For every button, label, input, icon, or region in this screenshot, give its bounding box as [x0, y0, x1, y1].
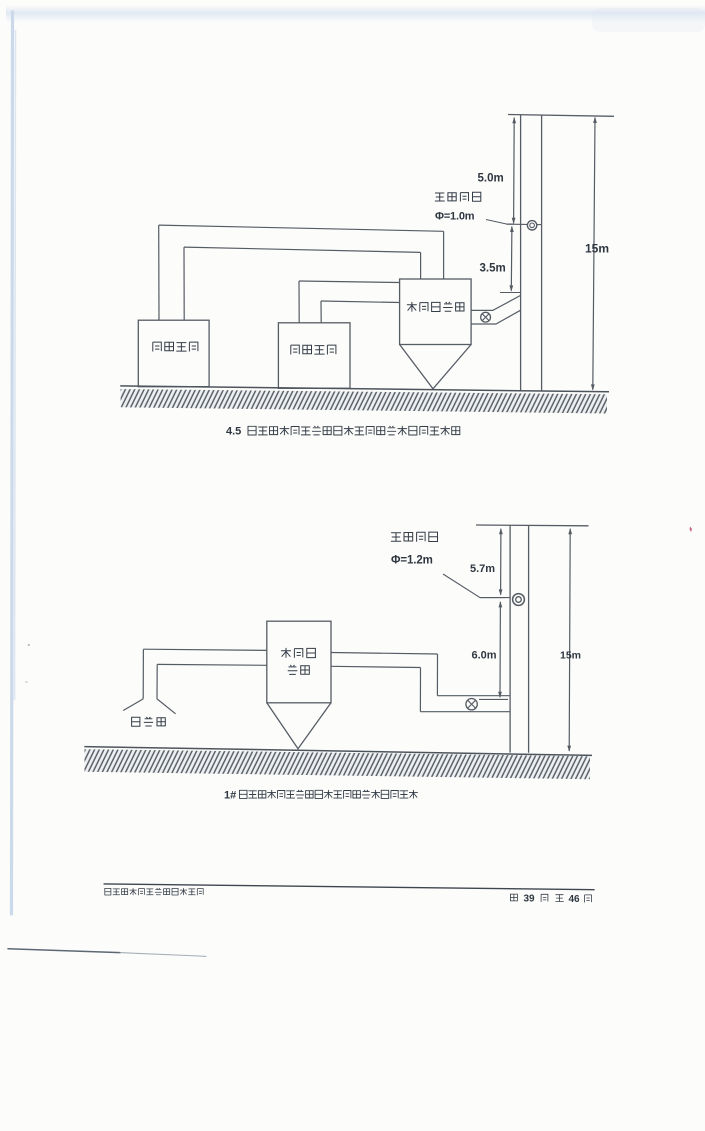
svg-text:Φ=1.2m: Φ=1.2m [391, 555, 433, 567]
svg-text:39: 39 [524, 894, 536, 905]
svg-text:6.0m: 6.0m [472, 650, 497, 662]
svg-text:15m: 15m [560, 650, 581, 662]
svg-text:15m: 15m [585, 242, 609, 256]
svg-text:5.7m: 5.7m [470, 563, 495, 575]
svg-text:Φ=1.0m: Φ=1.0m [435, 211, 475, 223]
svg-text:4.5: 4.5 [226, 426, 241, 438]
svg-text:46: 46 [569, 894, 581, 905]
svg-text:5.0m: 5.0m [478, 173, 504, 185]
svg-text:1#: 1# [224, 790, 236, 802]
svg-text:3.5m: 3.5m [480, 263, 506, 275]
